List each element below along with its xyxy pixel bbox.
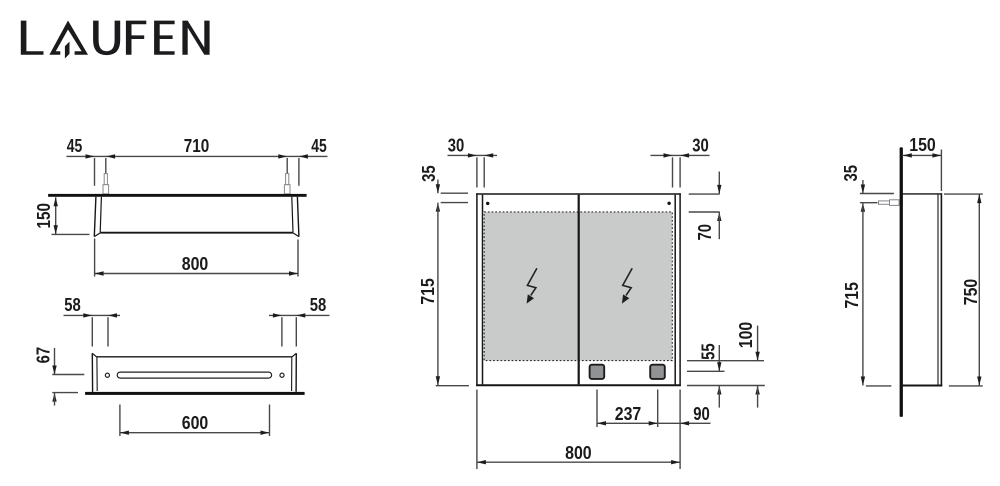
svg-text:35: 35 xyxy=(841,165,861,182)
svg-text:710: 710 xyxy=(184,136,210,156)
svg-text:30: 30 xyxy=(692,136,709,156)
svg-text:715: 715 xyxy=(418,278,438,305)
svg-text:67: 67 xyxy=(34,347,54,364)
svg-text:35: 35 xyxy=(419,165,439,182)
svg-text:750: 750 xyxy=(961,279,981,306)
svg-text:600: 600 xyxy=(182,413,209,433)
svg-text:30: 30 xyxy=(448,136,465,156)
svg-text:150: 150 xyxy=(34,203,54,229)
svg-text:58: 58 xyxy=(64,295,81,315)
svg-text:237: 237 xyxy=(615,404,642,424)
svg-text:715: 715 xyxy=(842,282,862,309)
svg-text:150: 150 xyxy=(909,135,936,155)
svg-text:70: 70 xyxy=(695,224,715,241)
svg-text:100: 100 xyxy=(736,322,756,349)
svg-text:90: 90 xyxy=(693,404,710,424)
svg-text:55: 55 xyxy=(698,343,718,360)
svg-text:45: 45 xyxy=(311,136,327,156)
svg-text:800: 800 xyxy=(182,254,209,274)
svg-text:45: 45 xyxy=(67,136,83,156)
svg-text:800: 800 xyxy=(565,443,592,463)
svg-text:58: 58 xyxy=(310,295,327,315)
